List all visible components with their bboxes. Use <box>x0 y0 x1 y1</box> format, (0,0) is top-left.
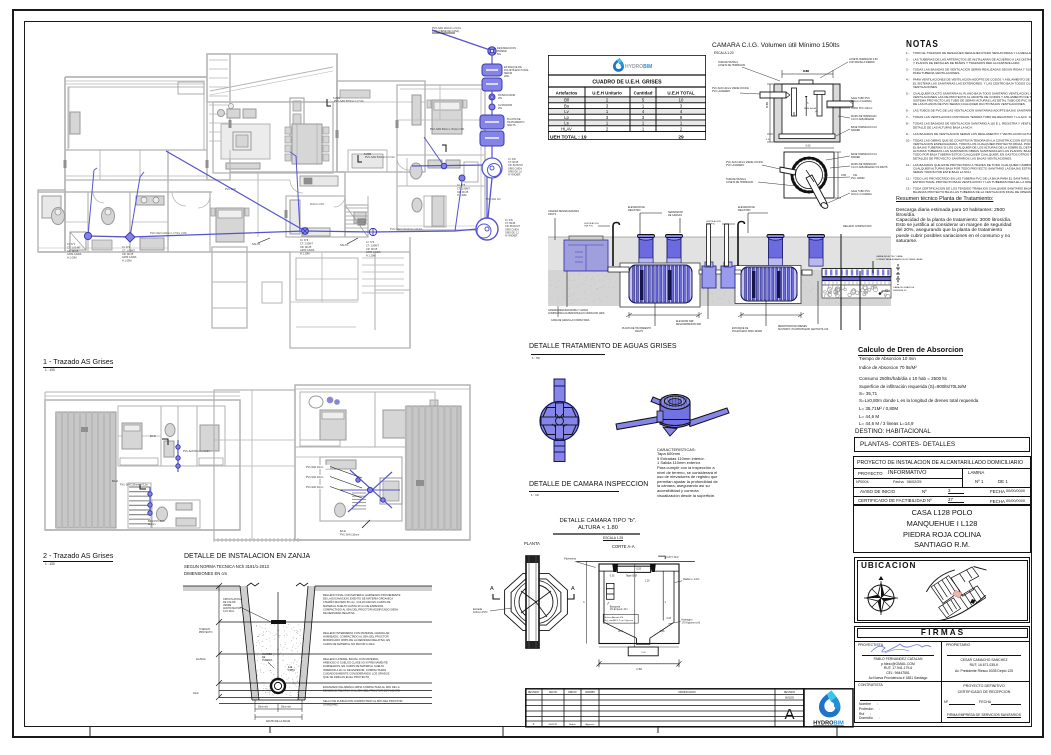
svg-text:10cm: 10cm <box>193 692 199 695</box>
svg-text:0.10 O ALBAÑILERIA H=0.60MTS: 0.10 O ALBAÑILERIA H=0.60MTS <box>851 166 888 169</box>
svg-text:Lp: Lp <box>564 115 569 120</box>
svg-text:1.20: 1.20 <box>645 580 650 583</box>
svg-text:VENTILACIONES.: VENTILACIONES. <box>913 85 938 89</box>
svg-text:REVISION: REVISION <box>784 692 795 694</box>
svg-text:LOSETA DE HORMIGON: LOSETA DE HORMIGON <box>726 181 753 184</box>
svg-text:Estuco Afinado 5/6: Estuco Afinado 5/6 <box>605 616 624 619</box>
svg-text:110mm PVC: 110mm PVC <box>473 610 488 614</box>
svg-text:50L: 50L <box>497 53 502 56</box>
svg-text:0.20: 0.20 <box>667 618 672 620</box>
svg-text:RADIER: RADIER <box>851 156 860 159</box>
svg-text:ANCHO DE LA ZANJA: ANCHO DE LA ZANJA <box>266 720 291 723</box>
svg-text:2.-: 2.- <box>906 58 910 62</box>
svg-text:25L: 25L <box>498 107 503 110</box>
svg-text:LAS BAJADAS DE VENTILACION SE: LAS BAJADAS DE VENTILACION SERAN LOS REG… <box>913 132 1031 136</box>
svg-text:TODO EL TRAZADO DE DESAGÜES SE: TODO EL TRAZADO DE DESAGÜES SERA EJECUTA… <box>913 51 1031 55</box>
svg-text:300LTS: 300LTS <box>507 124 516 127</box>
svg-text:PVC-SAN 50Omm L=7,0m: PVC-SAN 50Omm L=7,0m <box>365 156 395 159</box>
svg-text:CODO PVC 110mm: CODO PVC 110mm <box>851 107 872 110</box>
svg-text:DESCOMPRESOR 30Ø: DESCOMPRESOR 30Ø <box>676 324 701 326</box>
svg-text:CAMA DE GRAVILLA COMPACTADA: CAMA DE GRAVILLA COMPACTADA <box>551 319 590 322</box>
svg-text:CUIDADOSAMENTE CONSIDERANDO LO: CUIDADOSAMENTE CONSIDERANDO LOS GRADOS <box>323 671 390 675</box>
svg-text:DETALLES DE PROYECTO SANITARIO: DETALLES DE PROYECTO SANITARIOS LAS BAJA… <box>913 156 1012 160</box>
svg-text:Author: Author <box>569 723 576 726</box>
svg-text:CAPAS DE MATERIAL NO MAYOR A 2: CAPAS DE MATERIAL NO MAYOR A 20cm <box>323 642 376 646</box>
svg-text:H 1.05M: H 1.05M <box>122 260 131 263</box>
svg-text:0.10: 0.10 <box>766 139 770 141</box>
svg-text:0.60: 0.60 <box>841 173 847 177</box>
svg-text:PVC-SAN 110mm: PVC-SAN 110mm <box>340 533 359 536</box>
svg-text:Bll: Bll <box>564 98 569 103</box>
svg-text:PVC LAVADERO: PVC LAVADERO <box>726 164 744 167</box>
svg-text:PVC-SAN 110 2mm L=6,0m: PVC-SAN 110 2mm L=6,0m <box>390 227 422 231</box>
svg-text:2: 2 <box>680 126 683 131</box>
svg-text:1% E=pend. 3m³: 1% E=pend. 3m³ <box>610 608 628 611</box>
svg-text:BAJA: BAJA <box>150 435 156 438</box>
svg-text:Approver: Approver <box>586 723 595 726</box>
svg-text:4.-: 4.- <box>906 78 910 82</box>
svg-text:CUADRO DE U.E.H. GRISES: CUADRO DE U.E.H. GRISES <box>592 80 662 86</box>
svg-text:LAS TUBOS DE PVC DE LAS VENTIL: LAS TUBOS DE PVC DE LAS VENTILACION SANI… <box>913 109 1031 113</box>
svg-text:h: h <box>665 602 667 604</box>
svg-text:12.-: 12.- <box>906 177 911 181</box>
svg-text:20%: 20% <box>660 631 665 633</box>
svg-text:REGISTRO: REGISTRO <box>628 209 641 212</box>
svg-text:PVC-SAN 40mm: PVC-SAN 40mm <box>306 486 323 489</box>
svg-text:SELLO DE FUNDACION COMPACTADO: SELLO DE FUNDACION COMPACTADO AL 80% DEL… <box>323 699 402 703</box>
svg-text:PVC-SAN 40mm: PVC-SAN 40mm <box>306 476 323 479</box>
svg-text:BAJA PVC-SAN: BAJA PVC-SAN <box>148 520 165 523</box>
svg-text:HLAV: HLAV <box>561 126 572 131</box>
svg-text:ARENOSO O SUELOS CLASE I/O III: ARENOSO O SUELOS CLASE I/O III PREVIAMEN… <box>323 661 388 665</box>
svg-text:CAMARA DESGRASADORA Y GRAVA: CAMARA DESGRASADORA Y GRAVA <box>548 309 589 312</box>
svg-text:PLANTA DE TRATAMIENTO: PLANTA DE TRATAMIENTO <box>622 327 651 330</box>
svg-text:DE GRASAS: DE GRASAS <box>668 214 682 217</box>
svg-text:200L: 200L <box>504 75 510 78</box>
svg-text:STANDARD: STANDARD <box>323 703 338 707</box>
svg-text:LOSETA DE HORMIGON: LOSETA DE HORMIGON <box>718 64 745 67</box>
svg-text:A: A <box>533 723 535 726</box>
svg-text:DRENAJE 20: DRENAJE 20 <box>893 289 907 292</box>
svg-text:TUBERIA: TUBERIA <box>262 659 273 662</box>
svg-text:PVC-SAN: PVC-SAN <box>225 188 236 191</box>
svg-text:U.E.H Unitario: U.E.H Unitario <box>592 91 622 96</box>
svg-text:0.10 O ALBAÑILERIA: 0.10 O ALBAÑILERIA <box>851 118 875 121</box>
svg-text:06/02/25: 06/02/25 <box>785 698 795 700</box>
svg-text:0.20: 0.20 <box>637 568 642 570</box>
svg-text:SUSTRATO, POLIPROPILENO GEOTEX: SUSTRATO, POLIPROPILENO GEOTEXTIL 100 <box>778 328 829 331</box>
svg-text:ELEVADOR 30Ø: ELEVADOR 30Ø <box>676 320 694 323</box>
svg-text:PARA TUBERIA VENTILACIONES.: PARA TUBERIA VENTILACIONES. <box>913 71 960 75</box>
svg-text:HYDROBIM: HYDROBIM <box>813 721 844 727</box>
svg-text:i=3% (VIENE DE CASA): i=3% (VIENE DE CASA) <box>432 30 459 33</box>
svg-text:GRAVA SELECTA Y CAMA: GRAVA SELECTA Y CAMA <box>876 255 903 258</box>
svg-text:POLIETILENO 5000L SEDIM: POLIETILENO 5000L SEDIM <box>732 331 762 333</box>
svg-text:A: A <box>784 706 794 723</box>
svg-text:MODIFICACION: MODIFICACION <box>679 691 696 694</box>
svg-text:PVC-SAN 40mm: PVC-SAN 40mm <box>306 466 323 469</box>
svg-text:Pavimento: Pavimento <box>564 557 577 561</box>
svg-text:75Ø PVC: 75Ø PVC <box>584 226 594 228</box>
svg-text:6.-: 6.- <box>906 109 910 113</box>
svg-text:DIBUJO: DIBUJO <box>568 692 577 694</box>
svg-text:H° RADIER: H° RADIER <box>508 174 521 177</box>
svg-text:H° RADIER: H° RADIER <box>505 235 518 238</box>
svg-text:HARNEADO, COMPACTADO AL 95% DE: HARNEADO, COMPACTADO AL 95% DEL PROCTOR <box>323 635 389 639</box>
svg-text:PVC 110MM: PVC 110MM <box>851 177 864 180</box>
svg-text:h: h <box>583 601 585 604</box>
svg-text:MATERIAL SUELTO HASTA 30 cm DE: MATERIAL SUELTO HASTA 30 cm DE ESPESOR, <box>323 604 384 608</box>
svg-text:U.E.H TOTAL: U.E.H TOTAL <box>667 91 694 96</box>
svg-text:5.-: 5.- <box>906 91 910 95</box>
svg-text:Tapa 60 Ø: Tapa 60 Ø <box>626 574 637 577</box>
svg-text:VENTILACION: VENTILACION <box>706 220 721 223</box>
svg-text:MODIFICADO 0/95% DE LA DENSID: MODIFICADO 0/95% DE LA DENSIDAD RELATIVA… <box>323 638 390 642</box>
svg-text:0.10: 0.10 <box>642 652 647 654</box>
svg-text:h: h <box>807 102 809 105</box>
svg-text:3: 3 <box>642 115 645 120</box>
svg-text:INFERIOR A 20 cm DE ESPESOR, C: INFERIOR A 20 cm DE ESPESOR, COMPACTADAS <box>323 668 386 672</box>
svg-text:300LTS: 300LTS <box>635 331 643 333</box>
svg-text:SERAN TODOS POR ESTE BAJA LA N: SERAN TODOS POR ESTE BAJA LA NCH. <box>913 170 972 174</box>
svg-text:N.P.T ±0.0: N.P.T ±0.0 <box>667 555 680 559</box>
svg-text:30cm mín: 30cm mín <box>281 707 292 709</box>
svg-text:Cantidad: Cantidad <box>634 91 653 96</box>
svg-text:NIVEL AGUA: NIVEL AGUA <box>804 107 816 110</box>
svg-text:06/02/25: 06/02/25 <box>549 724 558 726</box>
svg-text:110mm i=3%: 110mm i=3% <box>310 203 325 206</box>
svg-text:ESTANQUE DE: ESTANQUE DE <box>732 327 749 330</box>
svg-text:3.-: 3.- <box>906 68 910 72</box>
svg-text:CON MANILLA FIERRO: CON MANILLA FIERRO <box>849 61 875 64</box>
svg-text:PVC-SAN 110mm L=7,5m i=3%: PVC-SAN 110mm L=7,5m i=3% <box>150 231 187 235</box>
svg-text:Radier e: 0.10 a H.: Radier e: 0.10 a H. <box>683 578 700 581</box>
svg-text:11.-: 11.- <box>906 163 911 167</box>
svg-text:PROYECTO: PROYECTO <box>199 631 213 634</box>
svg-text:HARNEADOS, EN CAPAS DE MATERIA: HARNEADOS, EN CAPAS DE MATERIAL SUELTA <box>323 664 384 668</box>
svg-text:1: 1 <box>642 103 645 108</box>
svg-text:COMPACTADO AL 95% DEL PROCTOR: COMPACTADO AL 95% DEL PROCTOR MODIFICADO… <box>323 607 399 611</box>
svg-text:FECHA: FECHA <box>549 691 557 694</box>
svg-text:1.50: 1.50 <box>636 667 642 671</box>
svg-text:7.-: 7.- <box>906 115 910 119</box>
svg-text:0.70: 0.70 <box>765 102 769 108</box>
svg-text:RELLENO COMPACTADO: RELLENO COMPACTADO <box>843 225 872 228</box>
svg-text:Bo: Bo <box>564 103 570 108</box>
svg-text:3: 3 <box>680 103 683 108</box>
svg-text:DENSIDAD RELATIVA O AL 85% DEL: DENSIDAD RELATIVA O AL 85% DEL PROCTOR E… <box>323 689 400 693</box>
svg-text:0.60: 0.60 <box>803 69 809 73</box>
svg-text:DE LA EXCAVACION, EXENTO DE MA: DE LA EXCAVACION, EXENTO DE MATERIA ORGA… <box>323 597 393 601</box>
svg-text:Y PLANOS DE DETALLES DE BAÑOS: Y PLANOS DE DETALLES DE BAÑOS Y TRAZADOS… <box>913 60 1020 65</box>
svg-text:BAJADAS PROYECTO BAJA LAS TUBE: BAJADAS PROYECTO BAJA LAS TUBERIAS DE LA… <box>913 190 1031 194</box>
svg-text:A 15 10cm: A 15 10cm <box>223 610 234 613</box>
svg-text:RADIER: RADIER <box>851 129 860 132</box>
svg-text:25L: 25L <box>498 97 503 100</box>
svg-text:150LTS: 150LTS <box>548 213 557 216</box>
svg-text:40+50cm: 40+50cm <box>196 658 206 661</box>
svg-text:10.-: 10.- <box>906 138 911 142</box>
svg-text:APROBO: APROBO <box>585 691 595 694</box>
svg-text:PVC-SAN 50Omm L=7,0m: PVC-SAN 50Omm L=7,0m <box>334 100 364 103</box>
svg-text:1.-: 1.- <box>906 51 910 55</box>
svg-text:TODAS LAS VENTILACION CONTINUA: TODAS LAS VENTILACION CONTINUAN TENDRA T… <box>913 115 1031 119</box>
svg-text:110mm A CAMARA: 110mm A CAMARA <box>851 100 872 103</box>
svg-text:1: 1 <box>642 126 645 131</box>
svg-text:ESTRUCTURAL PROYECTO BAJA VENT: ESTRUCTURAL PROYECTO BAJA VENTILACION Y … <box>913 180 1031 184</box>
svg-text:(h): (h) <box>815 111 818 113</box>
svg-text:VENTILACION: VENTILACION <box>584 222 599 225</box>
svg-text:H 1.10M: H 1.10M <box>300 253 309 256</box>
svg-text:HYDROBIM: HYDROBIM <box>625 64 652 70</box>
svg-text:RELLENO LATERAL INICIAL CON MA: RELLENO LATERAL INICIAL CON MATERIAL <box>323 657 379 661</box>
svg-text:9: 9 <box>680 115 683 120</box>
svg-text:A: A <box>490 586 494 592</box>
svg-text:PVC-SAN 110: PVC-SAN 110 <box>486 198 501 201</box>
svg-text:PVC-SAN 110mm L=3,1m: PVC-SAN 110mm L=3,1m <box>120 483 148 486</box>
svg-text:13.-: 13.- <box>906 187 911 191</box>
svg-text:110mm A CAMARA: 110mm A CAMARA <box>851 193 872 196</box>
svg-text:BAJA: BAJA <box>112 480 118 483</box>
svg-text:RELLENO FINAL CON MATERIAL HAR: RELLENO FINAL CON MATERIAL HARNEADO PROV… <box>323 593 401 597</box>
svg-text:DETALLE DE LAS ALTURAS BAJA LA: DETALLE DE LAS ALTURAS BAJA LA NCH. <box>913 125 973 129</box>
svg-text:Artefactos: Artefactos <box>556 91 578 96</box>
svg-text:SALTO: SALTO <box>340 243 348 247</box>
svg-text:REPARTIDOR DE DRENES: REPARTIDOR DE DRENES <box>778 325 807 328</box>
svg-text:Ls: Ls <box>564 121 568 126</box>
svg-text:REGISTRO: REGISTRO <box>738 209 751 212</box>
svg-text:ENCAMADO DE ARENA LIMPIA COMPA: ENCAMADO DE ARENA LIMPIA COMPACTADA AL 9… <box>323 685 400 689</box>
svg-text:CINTA: CINTA <box>288 669 295 672</box>
svg-text:H 1.00M: H 1.00M <box>67 257 76 260</box>
svg-text:8.-: 8.- <box>906 122 910 126</box>
svg-text:170 Kg/cem (m³): 170 Kg/cem (m³) <box>682 622 701 625</box>
svg-text:3: 3 <box>606 103 609 108</box>
svg-text:3: 3 <box>606 115 609 120</box>
svg-text:10: 10 <box>679 98 684 103</box>
svg-text:COMPACTADA ACABADO/SUST.DREN L: COMPACTADA ACABADO/SUST.DREN LAVAD. <box>876 258 924 261</box>
svg-text:30cm mín: 30cm mín <box>258 707 269 709</box>
svg-text:QUE SE INDICAN EN EL PROYECTO: QUE SE INDICAN EN EL PROYECTO <box>323 675 369 679</box>
svg-text:2: 2 <box>606 126 609 131</box>
svg-text:DE DENSIDAD RELATIVA: DE DENSIDAD RELATIVA <box>323 611 355 615</box>
svg-text:RELLENO INTERMEDIO CON MATERIA: RELLENO INTERMEDIO CON MATERIAL GRANULAR <box>323 631 390 635</box>
svg-text:9.-: 9.- <box>906 132 910 136</box>
svg-text:110mm: 110mm <box>148 524 156 526</box>
svg-text:UEH TOTAL : 19: UEH TOTAL : 19 <box>550 135 587 141</box>
svg-text:DE LAS PLANOS DE PVC SERAN CUA: DE LAS PLANOS DE PVC SERAN CUALQUIER DUC… <box>913 102 1026 106</box>
svg-text:PVC-SAN 50mm L=2,3m: PVC-SAN 50mm L=2,3m <box>183 450 210 453</box>
svg-text:H 1.20M: H 1.20M <box>366 255 375 258</box>
svg-text:PVC LAVADERO: PVC LAVADERO <box>712 90 730 93</box>
svg-text:75Ø PVC: 75Ø PVC <box>706 224 716 226</box>
svg-text:Kg_cem/M8 1,2 cm C/grasso: Kg_cem/M8 1,2 cm C/grasso <box>605 619 634 622</box>
svg-text:COMPACTADA ACABADO/SUELO FUNDA: COMPACTADA ACABADO/SUELO FUNDACION GRIS <box>548 312 605 315</box>
svg-text:0.60: 0.60 <box>806 145 811 148</box>
svg-text:20%: 20% <box>618 631 623 633</box>
svg-text:0.30: 0.30 <box>610 575 615 577</box>
svg-text:REVISION: REVISION <box>528 692 539 694</box>
svg-text:CAMA DE GRAVILLA: CAMA DE GRAVILLA <box>893 286 915 289</box>
svg-text:29: 29 <box>678 135 684 141</box>
